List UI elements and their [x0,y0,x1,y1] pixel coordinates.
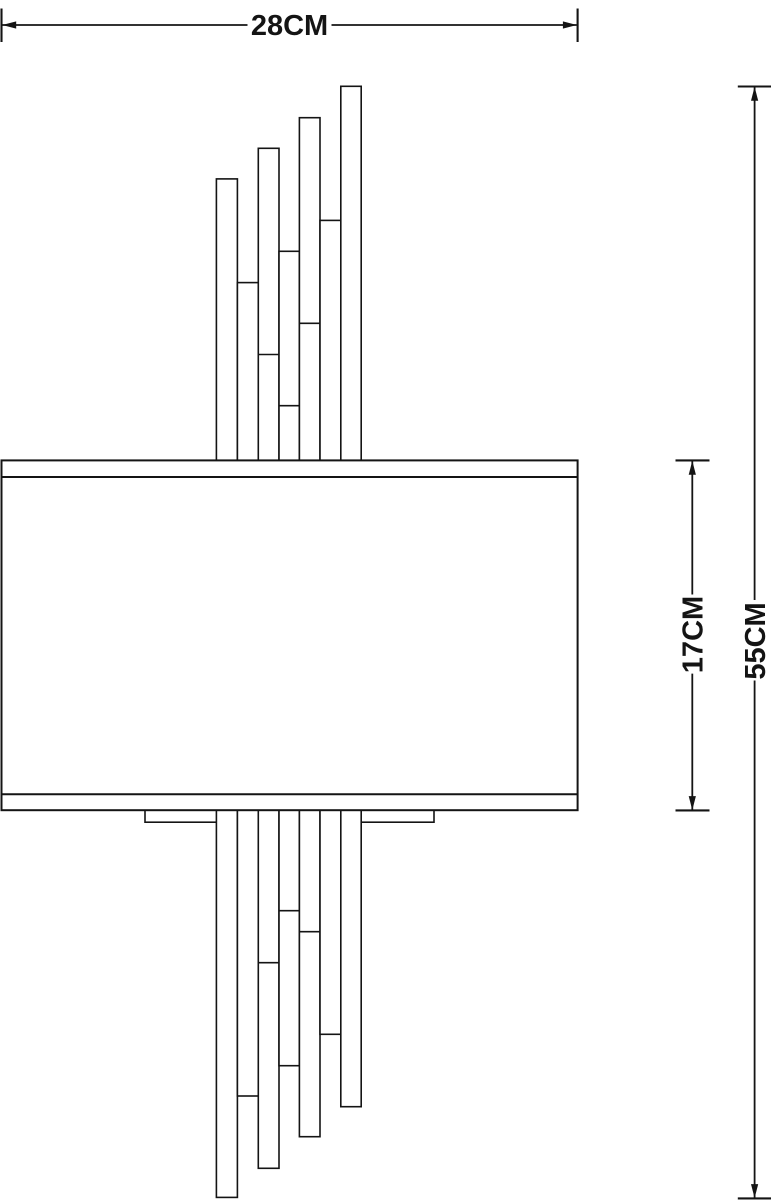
svg-text:17CM: 17CM [678,596,710,673]
svg-text:55CM: 55CM [740,602,771,679]
svg-text:28CM: 28CM [251,10,328,42]
